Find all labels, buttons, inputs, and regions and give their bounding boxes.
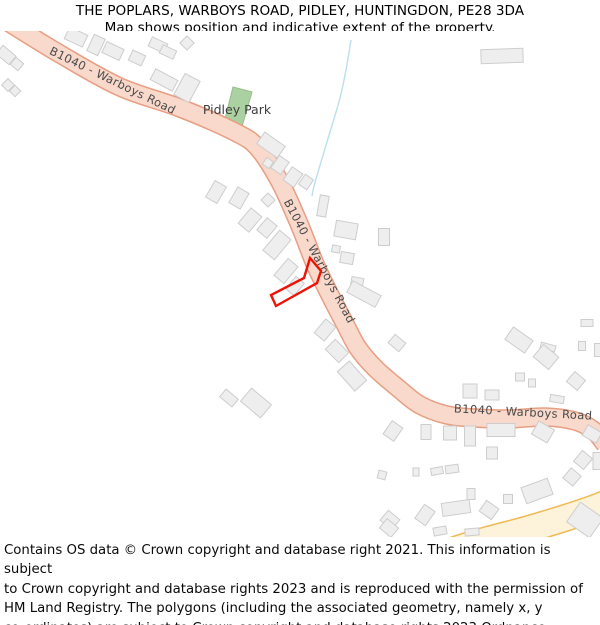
building (581, 320, 593, 327)
page-title: THE POPLARS, WARBOYS ROAD, PIDLEY, HUNTI… (0, 3, 600, 20)
building (413, 468, 419, 476)
building (487, 447, 498, 459)
property-map-report: THE POPLARS, WARBOYS ROAD, PIDLEY, HUNTI… (0, 0, 600, 625)
map-svg: B1040 - Warboys RoadB1040 - Warboys Road… (0, 31, 600, 537)
building (421, 425, 431, 440)
building (377, 470, 387, 480)
building (481, 48, 523, 63)
building (487, 424, 515, 437)
building (579, 342, 586, 351)
building (331, 245, 340, 253)
building (529, 379, 536, 387)
building (379, 229, 390, 246)
building (595, 344, 600, 357)
building (485, 390, 499, 400)
building (463, 384, 477, 398)
building (433, 526, 447, 536)
copyright-line: to Crown copyright and database rights 2… (4, 580, 596, 599)
building (465, 528, 480, 536)
building (334, 220, 358, 240)
building (430, 467, 443, 476)
building (467, 489, 475, 500)
building (516, 373, 525, 381)
building (593, 453, 600, 470)
copyright-line: Contains OS data © Crown copyright and d… (4, 541, 596, 580)
building (504, 495, 513, 504)
copyright-line: HM Land Registry. The polygons (includin… (4, 599, 596, 618)
building (445, 464, 459, 474)
map-canvas: B1040 - Warboys RoadB1040 - Warboys Road… (0, 31, 600, 537)
copyright-line: co-ordinates) are subject to Crown copyr… (4, 619, 596, 625)
building (340, 251, 355, 264)
building (444, 426, 457, 440)
copyright-notice: Contains OS data © Crown copyright and d… (0, 537, 600, 625)
building (465, 426, 476, 446)
park-name-label: Pidley Park (203, 102, 272, 117)
